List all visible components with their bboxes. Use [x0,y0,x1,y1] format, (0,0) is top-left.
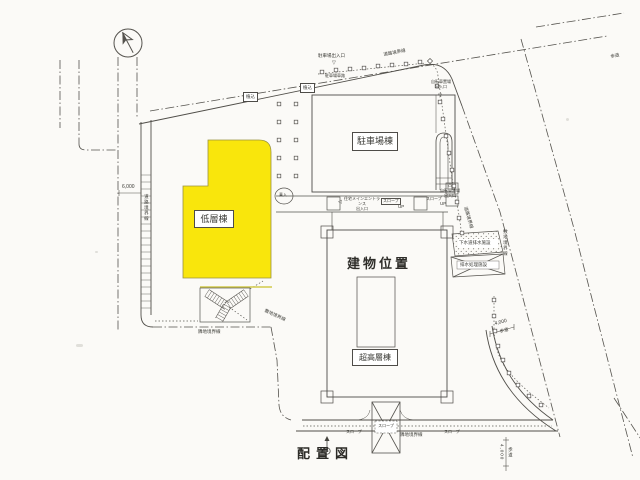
drain-space-label: 排水処理施設 [460,262,487,267]
slope-label-s2: スロープ [444,430,460,435]
plan-linework [0,0,640,480]
scan-speck [95,251,98,253]
bicycle-entrance-top-marker: ▽ [438,93,442,99]
site-boundary-right-label: 敷地境界線 [503,229,508,257]
scan-speck [566,118,569,121]
high-rise-label: 超高層棟 [352,349,398,366]
adjacent-boundary-s-label: 隣地境界線 [400,432,423,437]
adjacent-boundary-sw-label: 隣地境界線 [198,329,221,334]
road-boundary-left-label: 道路境界線 [144,194,149,222]
main-entrance-marker: ◁ [338,199,342,205]
bicycle-entrance-east-label: 自転車置場 出入口 [437,189,463,199]
sidewalk-south-label: 歩道 [508,447,513,458]
parking-entrance-label: 駐車場出入口 [318,53,345,58]
parking-entrance-marker: ▽ [332,60,336,66]
road-lines [60,13,640,458]
up-label-2: UP [440,201,446,206]
drain-facility-label: 下水道排水施設 [459,240,491,245]
slope-label-s1: スロープ [346,430,362,435]
parking-lane-label: 駐車場車路 [325,74,345,79]
building-position-label: 建物位置 [347,256,411,272]
bicycle-entrance-top-label: 自転車置場 出入口 [426,80,456,90]
planting-label-2: 植込 [300,83,315,93]
page-title: 配置図 [297,446,354,462]
drop-off-label: 乗入 [279,193,287,198]
up-label-1: UP [398,204,404,209]
planting-label-1: 植込 [243,92,258,102]
parking-label: 駐車場棟 [352,132,398,151]
site-plan: 配置図 低層棟 駐車場棟 建物位置 超高層棟 駐車場出入口 ▽ 駐車場車路 道路… [0,0,640,480]
main-entrance-label: 住宅メインエントランス 出入口 [344,197,380,211]
dim-6000-west: 6,000 [122,184,135,190]
slope-label-ramp: スロープ [376,424,396,429]
dim-4000-south: 4,000 [499,444,504,460]
scan-speck [76,344,83,347]
low-rise-label: 低層棟 [194,210,234,228]
tower-footprint [321,212,453,403]
north-arrow-icon [114,29,142,57]
facility-boxes [451,231,505,277]
